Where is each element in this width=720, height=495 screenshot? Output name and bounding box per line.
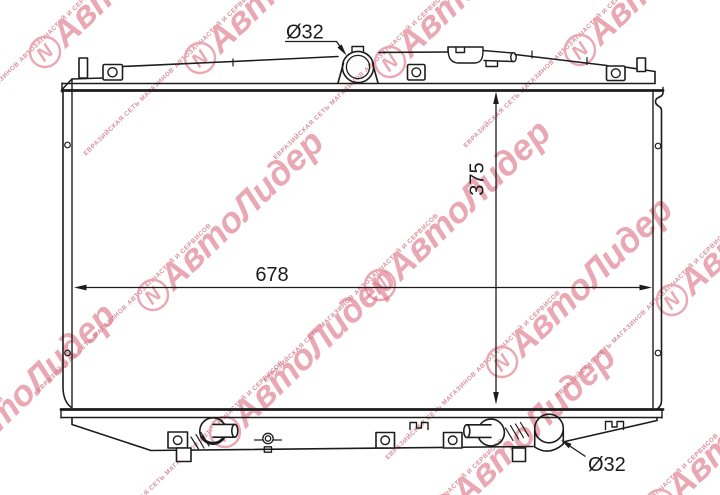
watermark-brand-text: АвтоЛидер <box>387 0 569 65</box>
overflow-fitting <box>448 47 516 67</box>
dim-top-port-label: Ø32 <box>286 22 324 44</box>
watermark-brand-text: АвтоЛидер <box>150 121 332 298</box>
watermark-brand-text: АвтоЛидер <box>577 0 720 53</box>
top-right-tab <box>637 58 646 72</box>
watermark: ЕВРАЗИЙСКАЯ СЕТЬ МАГАЗИНОВ АВТОЗАПЧАСТЕЙ… <box>0 0 223 171</box>
watermark-brand-text: АвтоЛидер <box>657 331 720 495</box>
dim-375-label: 375 <box>467 162 489 195</box>
dimension-top-port: Ø32 <box>285 22 347 56</box>
dim-678-label: 678 <box>255 264 288 286</box>
watermark-brand-text: АвтоЛидер <box>0 294 123 471</box>
watermark: ЕВРАЗИЙСКАЯ СЕТЬ МАГАЗИНОВ АВТОЗАПЧАСТЕЙ… <box>0 294 123 495</box>
dim-bottom-port-label: Ø32 <box>588 454 626 476</box>
watermark: ЕВРАЗИЙСКАЯ СЕТЬ МАГАЗИНОВ АВТОЗАПЧАСТЕЙ… <box>323 336 624 495</box>
dimension-bottom-port: Ø32 <box>561 440 626 476</box>
radiator-technical-drawing: ЕВРАЗИЙСКАЯ СЕТЬ МАГАЗИНОВ АВТОЗАПЧАСТЕЙ… <box>0 0 720 495</box>
watermark: ЕВРАЗИЙСКАЯ СЕТЬ МАГАЗИНОВ АВТОЗАПЧАСТЕЙ… <box>78 0 379 177</box>
top-left-tab <box>79 58 88 78</box>
watermark-brand-text: АвтоЛидер <box>377 111 559 288</box>
right-side-column <box>653 92 663 409</box>
